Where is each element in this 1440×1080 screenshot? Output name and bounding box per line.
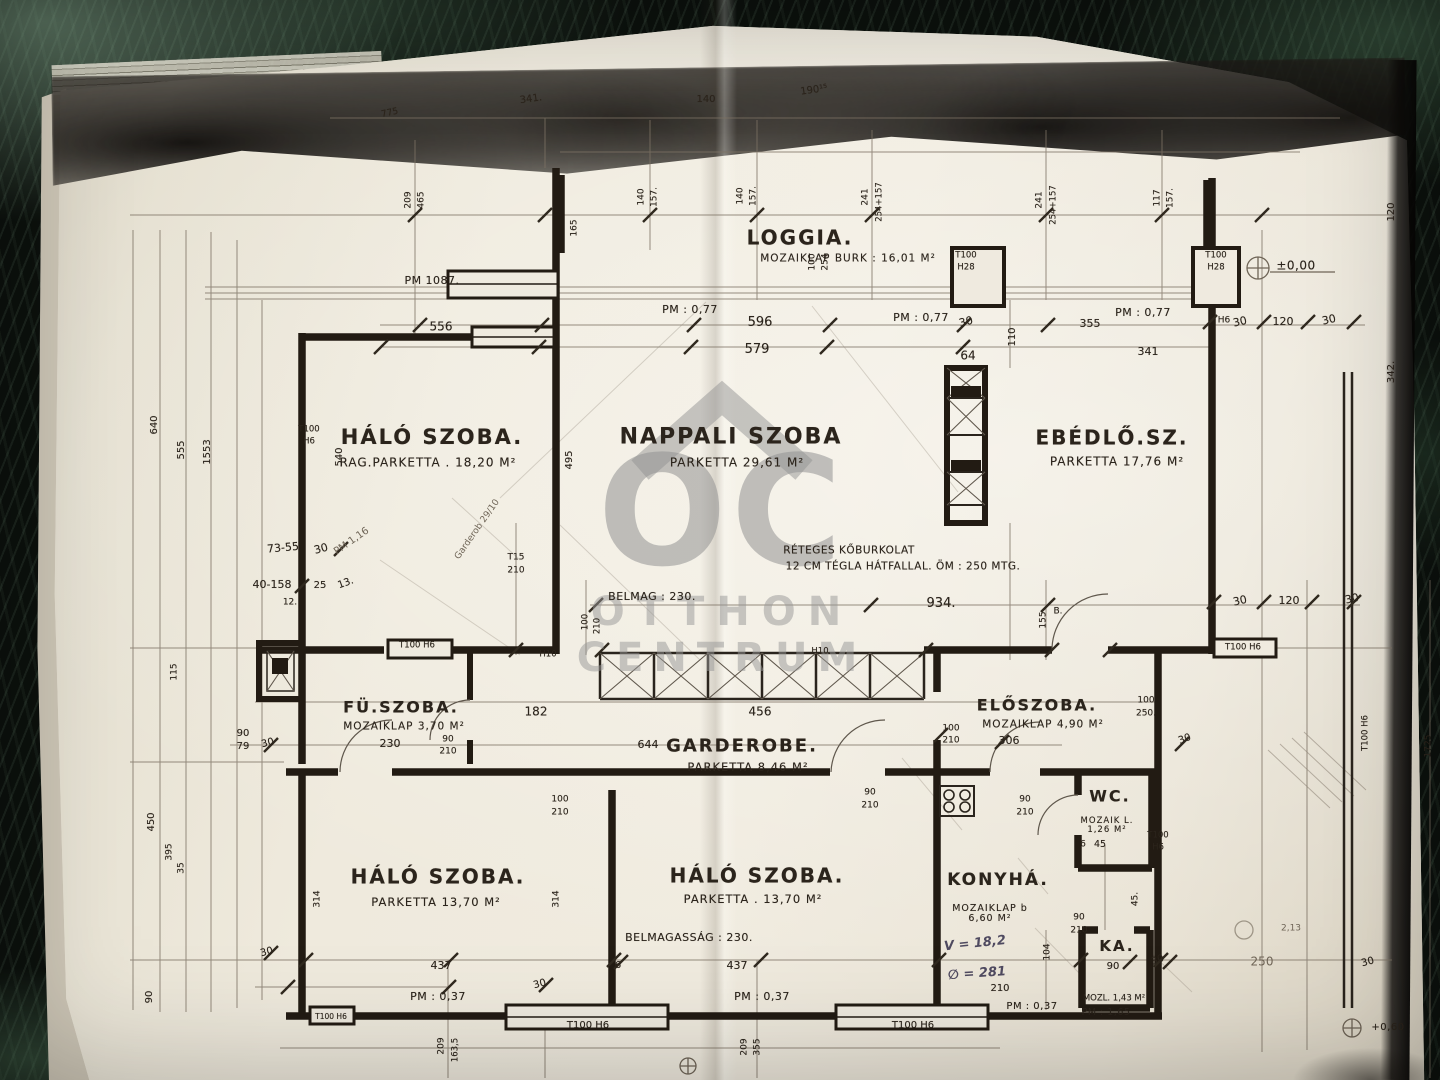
photo-vignette — [0, 0, 1440, 1080]
photo-of-floor-plan: OC OTTHON CENTRUM LOGGIA.MOZAIKLAP BURK … — [0, 0, 1440, 1080]
